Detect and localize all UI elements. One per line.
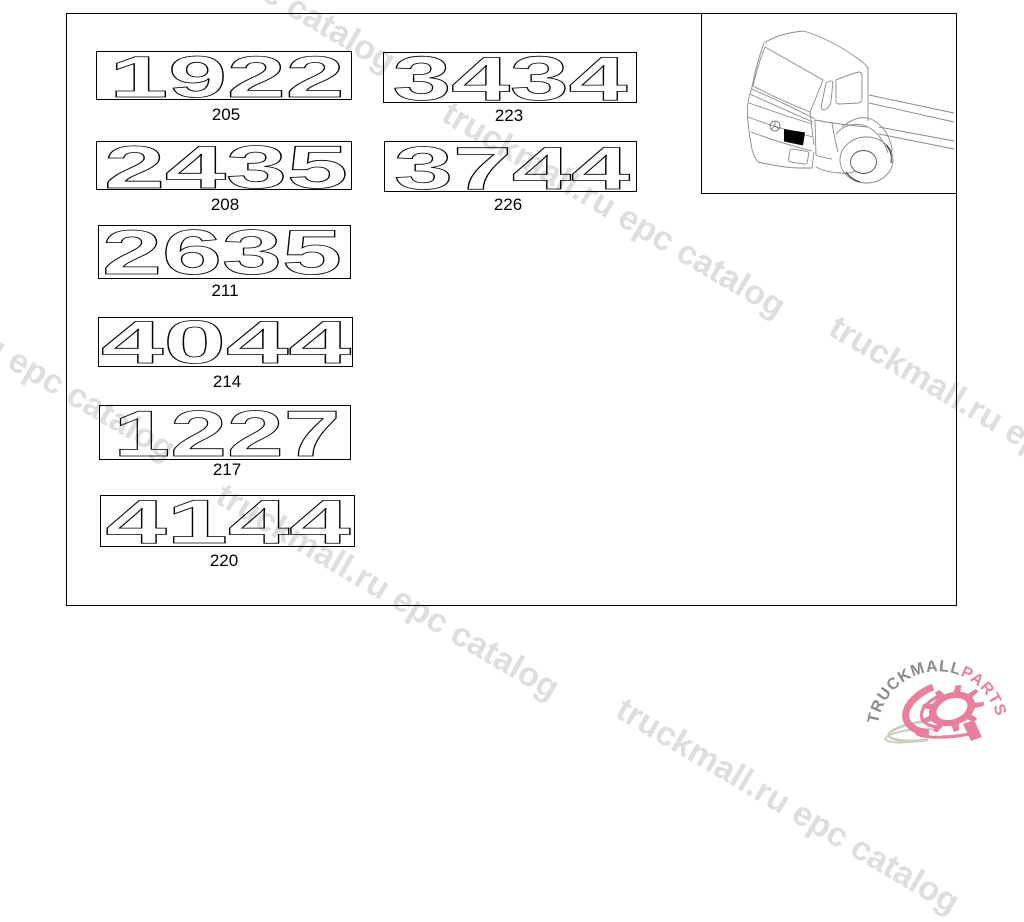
- svg-text:2635: 2635: [102, 218, 342, 288]
- svg-text:4044: 4044: [101, 309, 352, 376]
- svg-text:3744: 3744: [394, 135, 631, 202]
- svg-text:4144: 4144: [106, 488, 352, 557]
- svg-text:1922: 1922: [110, 45, 345, 110]
- svg-text:3434: 3434: [393, 45, 629, 114]
- svg-text:2435: 2435: [104, 134, 348, 201]
